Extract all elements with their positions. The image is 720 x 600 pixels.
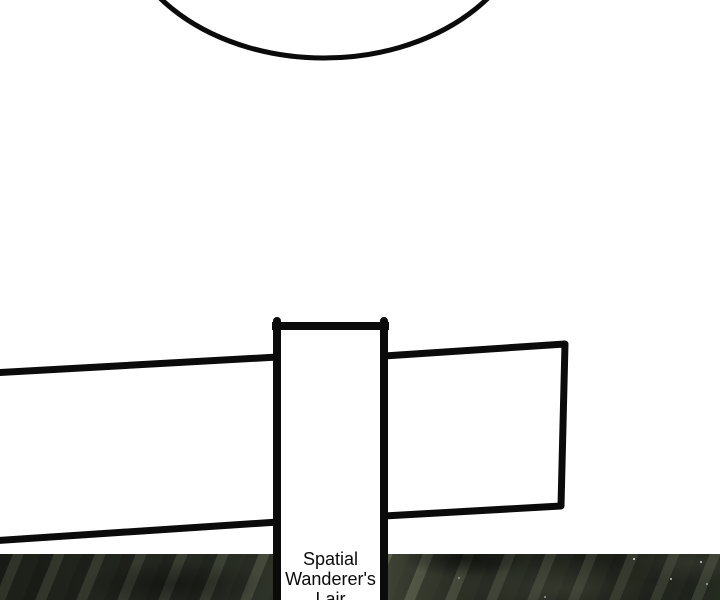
comic-panel: Spatial Wanderer's Lair (0, 0, 720, 600)
sign-post-label: Spatial Wanderer's Lair (278, 549, 383, 600)
sign-board-right (384, 344, 565, 516)
speech-bubble-outline (119, 0, 529, 58)
line-art (0, 0, 720, 600)
sign-board-left (0, 357, 278, 541)
